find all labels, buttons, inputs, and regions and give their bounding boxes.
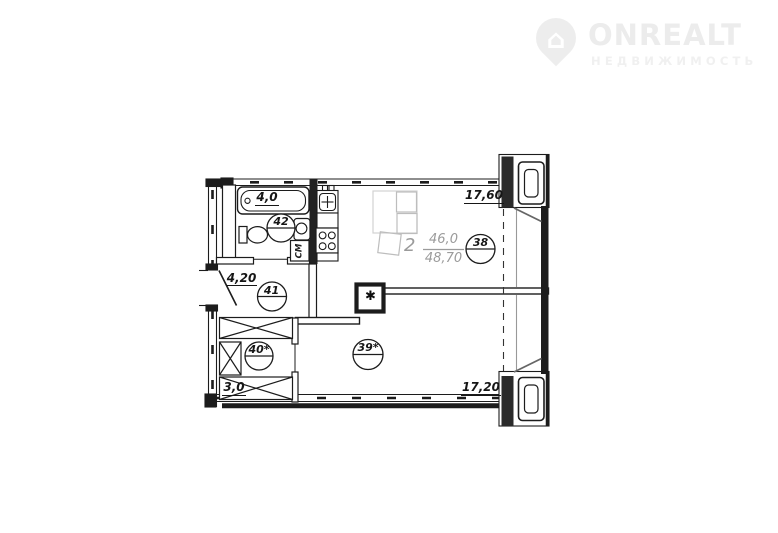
window-top-balcony [519,162,545,204]
apartment-living-area: 46,0 [423,233,464,246]
room-number-bedroom: 39* [353,342,383,354]
area-label-bedroom: 17,20 [461,381,500,396]
floor-plan-drawing [0,0,778,533]
stove-icon [316,228,338,253]
area-label-kitchen-living: 17,60 [464,189,502,204]
washing-machine-label: СМ [290,240,309,261]
room-number-closet: 40* [245,344,273,356]
room-number-bathroom: 42 [267,216,295,228]
apartment-total-area: 48,70 [423,252,464,265]
toilet-icon [239,227,247,244]
apartment-rooms-count: 2 [404,235,415,256]
floor-plan-image: ⌂ ONREALT НЕДВИЖИМОСТЬ [0,0,778,533]
area-label-hallway: 4,20 [225,272,258,287]
room-number-hallway: 41 [257,285,286,297]
window-bottom-balcony [519,378,545,421]
room-number-kitchen-living: 38 [465,237,496,249]
area-label-bathroom: 4,0 [250,191,284,206]
area-label-closet: 3,0 [220,381,248,396]
vent-shaft-symbol: ✱ [357,290,384,304]
kitchen-fixtures [316,186,338,262]
